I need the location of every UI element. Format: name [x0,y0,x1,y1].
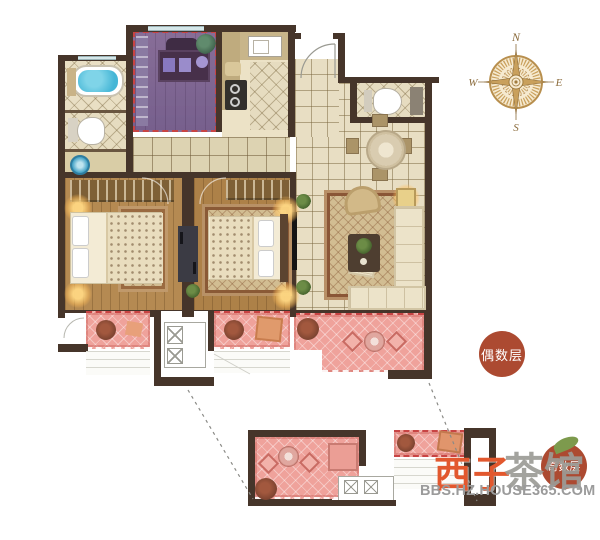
bed-right-headboard [280,214,288,282]
laundry-partition [65,149,126,152]
sofa-chaise [348,286,426,310]
shaft-wall-bottom [154,377,214,386]
balcony-right-plant [224,320,244,340]
ac-unit-2 [167,348,183,364]
bedroom-right-lamp-2 [272,282,300,310]
balcony-left-sill [86,351,150,375]
divider-handle-1 [180,232,183,244]
study-desk-lamp [196,56,208,68]
bed-left-pillow-2 [72,248,89,278]
bath-partition [65,110,126,113]
living-balcony-notch [294,350,322,372]
entry-threshold [295,39,339,59]
dining-table [366,130,406,170]
wall-east [425,77,432,317]
study-window [148,26,204,31]
bedroom-plant [186,284,200,298]
compass-label-w: W [468,77,478,89]
divider-handle-2 [193,262,196,274]
entry-floor [295,58,339,137]
detail-wall-left [248,430,255,506]
hallway-floor [133,137,290,172]
wall-west [58,55,65,318]
compass-label-n: N [511,30,521,44]
bed-right-pillow-1 [258,220,274,247]
living-balcony-wall-bottom [388,370,432,379]
shaft-wall-left [154,311,161,383]
detail-plant-2 [397,434,415,452]
living-balcony-rail [322,366,390,372]
compass-rose: N S W E [468,30,564,134]
detail-plant-1 [255,478,277,500]
bathroom2-cabinet [410,87,423,115]
living-balcony-table [364,331,385,352]
even-floor-badge: 偶数层 [479,331,525,377]
detail-ac-unit-2 [364,480,378,494]
study-shelf [136,36,148,126]
detail-ac-unit-1 [344,480,358,494]
bed-right-pillow-2 [258,250,274,277]
balcony-left-door-nook [62,313,86,346]
study-desk-item-1 [163,58,175,72]
bed-right-blanket [210,217,254,279]
ac-unit-1 [167,326,183,344]
dining-chair-w [346,138,359,154]
compass-label-s: S [513,122,519,134]
balcony-left-cushion [125,321,143,338]
wall-kitchen-entry [288,25,295,137]
detail-connector-left [188,390,253,499]
bath-window [78,56,116,60]
kitchen-small-appliance [225,62,241,76]
balcony-left-plant [96,320,116,340]
wall-bathroom2-bottom [350,117,432,123]
wall-entry-top-left [293,33,301,39]
compass-hub-dot [514,80,517,83]
floorplan-canvas: N S W E 偶数层 奇数层 西子 茶馆 BBS.HZ.HOUSE365.CO… [0,0,600,540]
kitchen-sink-basin [253,40,269,54]
bed-left-pillow-1 [72,216,89,246]
compass-label-e: E [555,77,563,89]
coffee-table-plant [356,238,372,254]
toilet [77,117,105,145]
washing-machine [70,155,90,175]
bath-cabinet [67,68,76,96]
wall-bath-study [126,31,133,178]
balcony-right-lounge [255,316,283,343]
stove-burner-1 [230,84,240,94]
bathtub-water [78,70,118,92]
living-balcony-plant [297,318,319,340]
watermark-site-url: BBS.HZ.HOUSE365.COM [420,483,595,499]
wall-entry-east [338,33,345,83]
stove-burner-2 [230,97,240,107]
study-desk-item-2 [179,58,191,72]
living-balcony-wall-right [424,311,432,378]
toilet2 [373,88,402,115]
wall-bedroom-divider-top [182,178,194,230]
coffee-table-candle [360,258,367,265]
detail-wall-top [248,430,366,437]
detail-table [278,446,299,467]
living-floor-lamp [396,188,416,208]
toilet2-tank [364,90,372,112]
detail-wall-ac-bottom [332,500,396,506]
even-floor-badge-label: 偶数层 [481,345,523,364]
bedroom-left-lamp-2 [64,280,92,308]
detail-wall-right-upper [359,430,366,466]
kitchen-tile-area [250,62,288,130]
balcony-right-sill [214,351,290,373]
detail-lounge [328,443,358,471]
detail-wall-bottom [248,499,332,506]
dining-chair-n [372,114,388,127]
balcony-left-end-wall [58,344,88,352]
wall-hallway-bedrooms [58,172,296,178]
bed-left-blanket [106,213,163,283]
study-plant [196,34,216,54]
